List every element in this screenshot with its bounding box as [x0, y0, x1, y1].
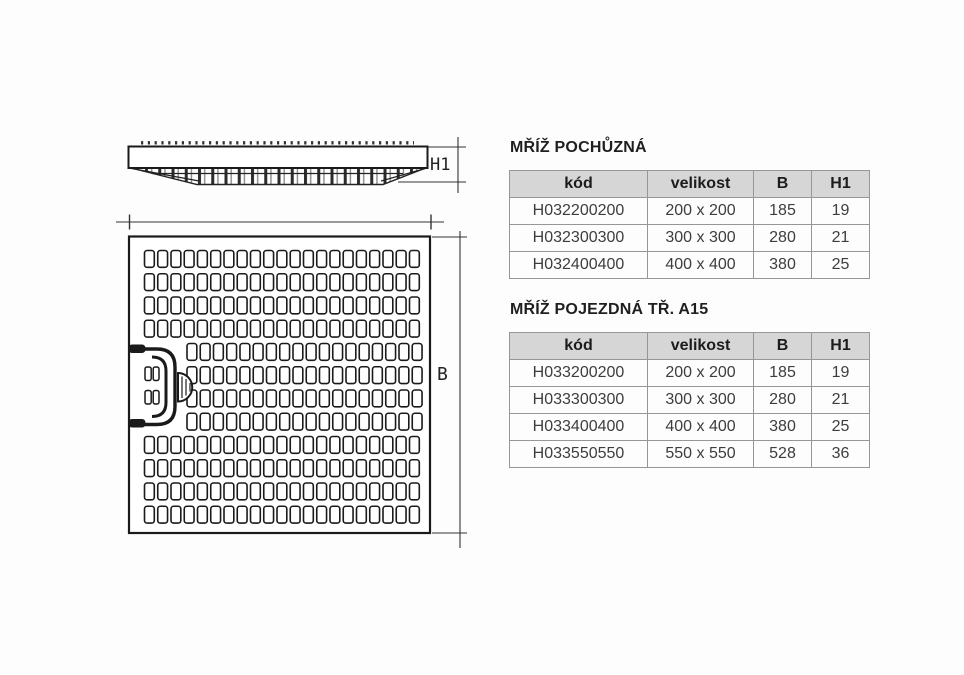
- cell-h1: 19: [812, 360, 870, 387]
- cell-h1: 36: [812, 441, 870, 468]
- table-row: H033300300 300 x 300 280 21: [510, 387, 870, 414]
- column-header-h1: H1: [812, 171, 870, 198]
- table-header-row: kód velikost B H1: [510, 333, 870, 360]
- cell-b: 280: [754, 225, 812, 252]
- column-header-b: B: [754, 171, 812, 198]
- cell-velikost: 200 x 200: [648, 198, 754, 225]
- column-header-kod: kód: [510, 333, 648, 360]
- table-row: H032300300 300 x 300 280 21: [510, 225, 870, 252]
- grate-side-view: H1: [129, 137, 467, 193]
- cell-kod: H032200200: [510, 198, 648, 225]
- cell-velikost: 300 x 300: [648, 225, 754, 252]
- h1-dimension-label: H1: [430, 155, 450, 175]
- spec-tables: MŘÍŽ POCHŮZNÁ kód velikost B H1 H0322002…: [509, 139, 871, 468]
- cell-velikost: 300 x 300: [648, 387, 754, 414]
- technical-drawing: H1: [0, 0, 490, 600]
- spec-section-pojezdna: MŘÍŽ POJEZDNÁ TŘ. A15 kód velikost B H1 …: [509, 301, 871, 468]
- column-header-kod: kód: [510, 171, 648, 198]
- handle-hinge-top: [129, 345, 146, 354]
- column-header-h1: H1: [812, 333, 870, 360]
- cell-velikost: 400 x 400: [648, 414, 754, 441]
- cell-b: 380: [754, 414, 812, 441]
- side-view-plate: [129, 147, 428, 169]
- cell-kod: H032400400: [510, 252, 648, 279]
- column-header-b: B: [754, 333, 812, 360]
- cell-h1: 21: [812, 225, 870, 252]
- cell-h1: 21: [812, 387, 870, 414]
- cell-velikost: 400 x 400: [648, 252, 754, 279]
- cell-b: 280: [754, 387, 812, 414]
- cell-h1: 19: [812, 198, 870, 225]
- section-title: MŘÍŽ POCHŮZNÁ: [510, 139, 871, 157]
- cell-h1: 25: [812, 414, 870, 441]
- cell-velikost: 200 x 200: [648, 360, 754, 387]
- cell-kod: H033300300: [510, 387, 648, 414]
- cell-velikost: 550 x 550: [648, 441, 754, 468]
- spec-section-pochuzna: MŘÍŽ POCHŮZNÁ kód velikost B H1 H0322002…: [509, 139, 871, 279]
- cell-kod: H033200200: [510, 360, 648, 387]
- column-header-velikost: velikost: [648, 333, 754, 360]
- handle-hinge-bottom: [129, 419, 146, 428]
- cell-b: 185: [754, 360, 812, 387]
- table-row: H032200200 200 x 200 185 19: [510, 198, 870, 225]
- table-row: H033550550 550 x 550 528 36: [510, 441, 870, 468]
- section-title: MŘÍŽ POJEZDNÁ TŘ. A15: [510, 301, 871, 319]
- width-dimension-line: [116, 215, 444, 230]
- b-dimension-label: B: [437, 364, 448, 385]
- b-dimension: [432, 231, 467, 548]
- datasheet-page: H1: [0, 0, 964, 675]
- spec-table: kód velikost B H1 H033200200 200 x 200 1…: [509, 332, 870, 468]
- table-row: H032400400 400 x 400 380 25: [510, 252, 870, 279]
- cell-kod: H032300300: [510, 225, 648, 252]
- cell-kod: H033550550: [510, 441, 648, 468]
- cell-kod: H033400400: [510, 414, 648, 441]
- column-header-velikost: velikost: [648, 171, 754, 198]
- cell-h1: 25: [812, 252, 870, 279]
- cell-b: 185: [754, 198, 812, 225]
- grate-plan-view: B: [116, 215, 467, 549]
- cell-b: 528: [754, 441, 812, 468]
- table-header-row: kód velikost B H1: [510, 171, 870, 198]
- table-row: H033400400 400 x 400 380 25: [510, 414, 870, 441]
- table-row: H033200200 200 x 200 185 19: [510, 360, 870, 387]
- spec-table: kód velikost B H1 H032200200 200 x 200 1…: [509, 170, 870, 279]
- cell-b: 380: [754, 252, 812, 279]
